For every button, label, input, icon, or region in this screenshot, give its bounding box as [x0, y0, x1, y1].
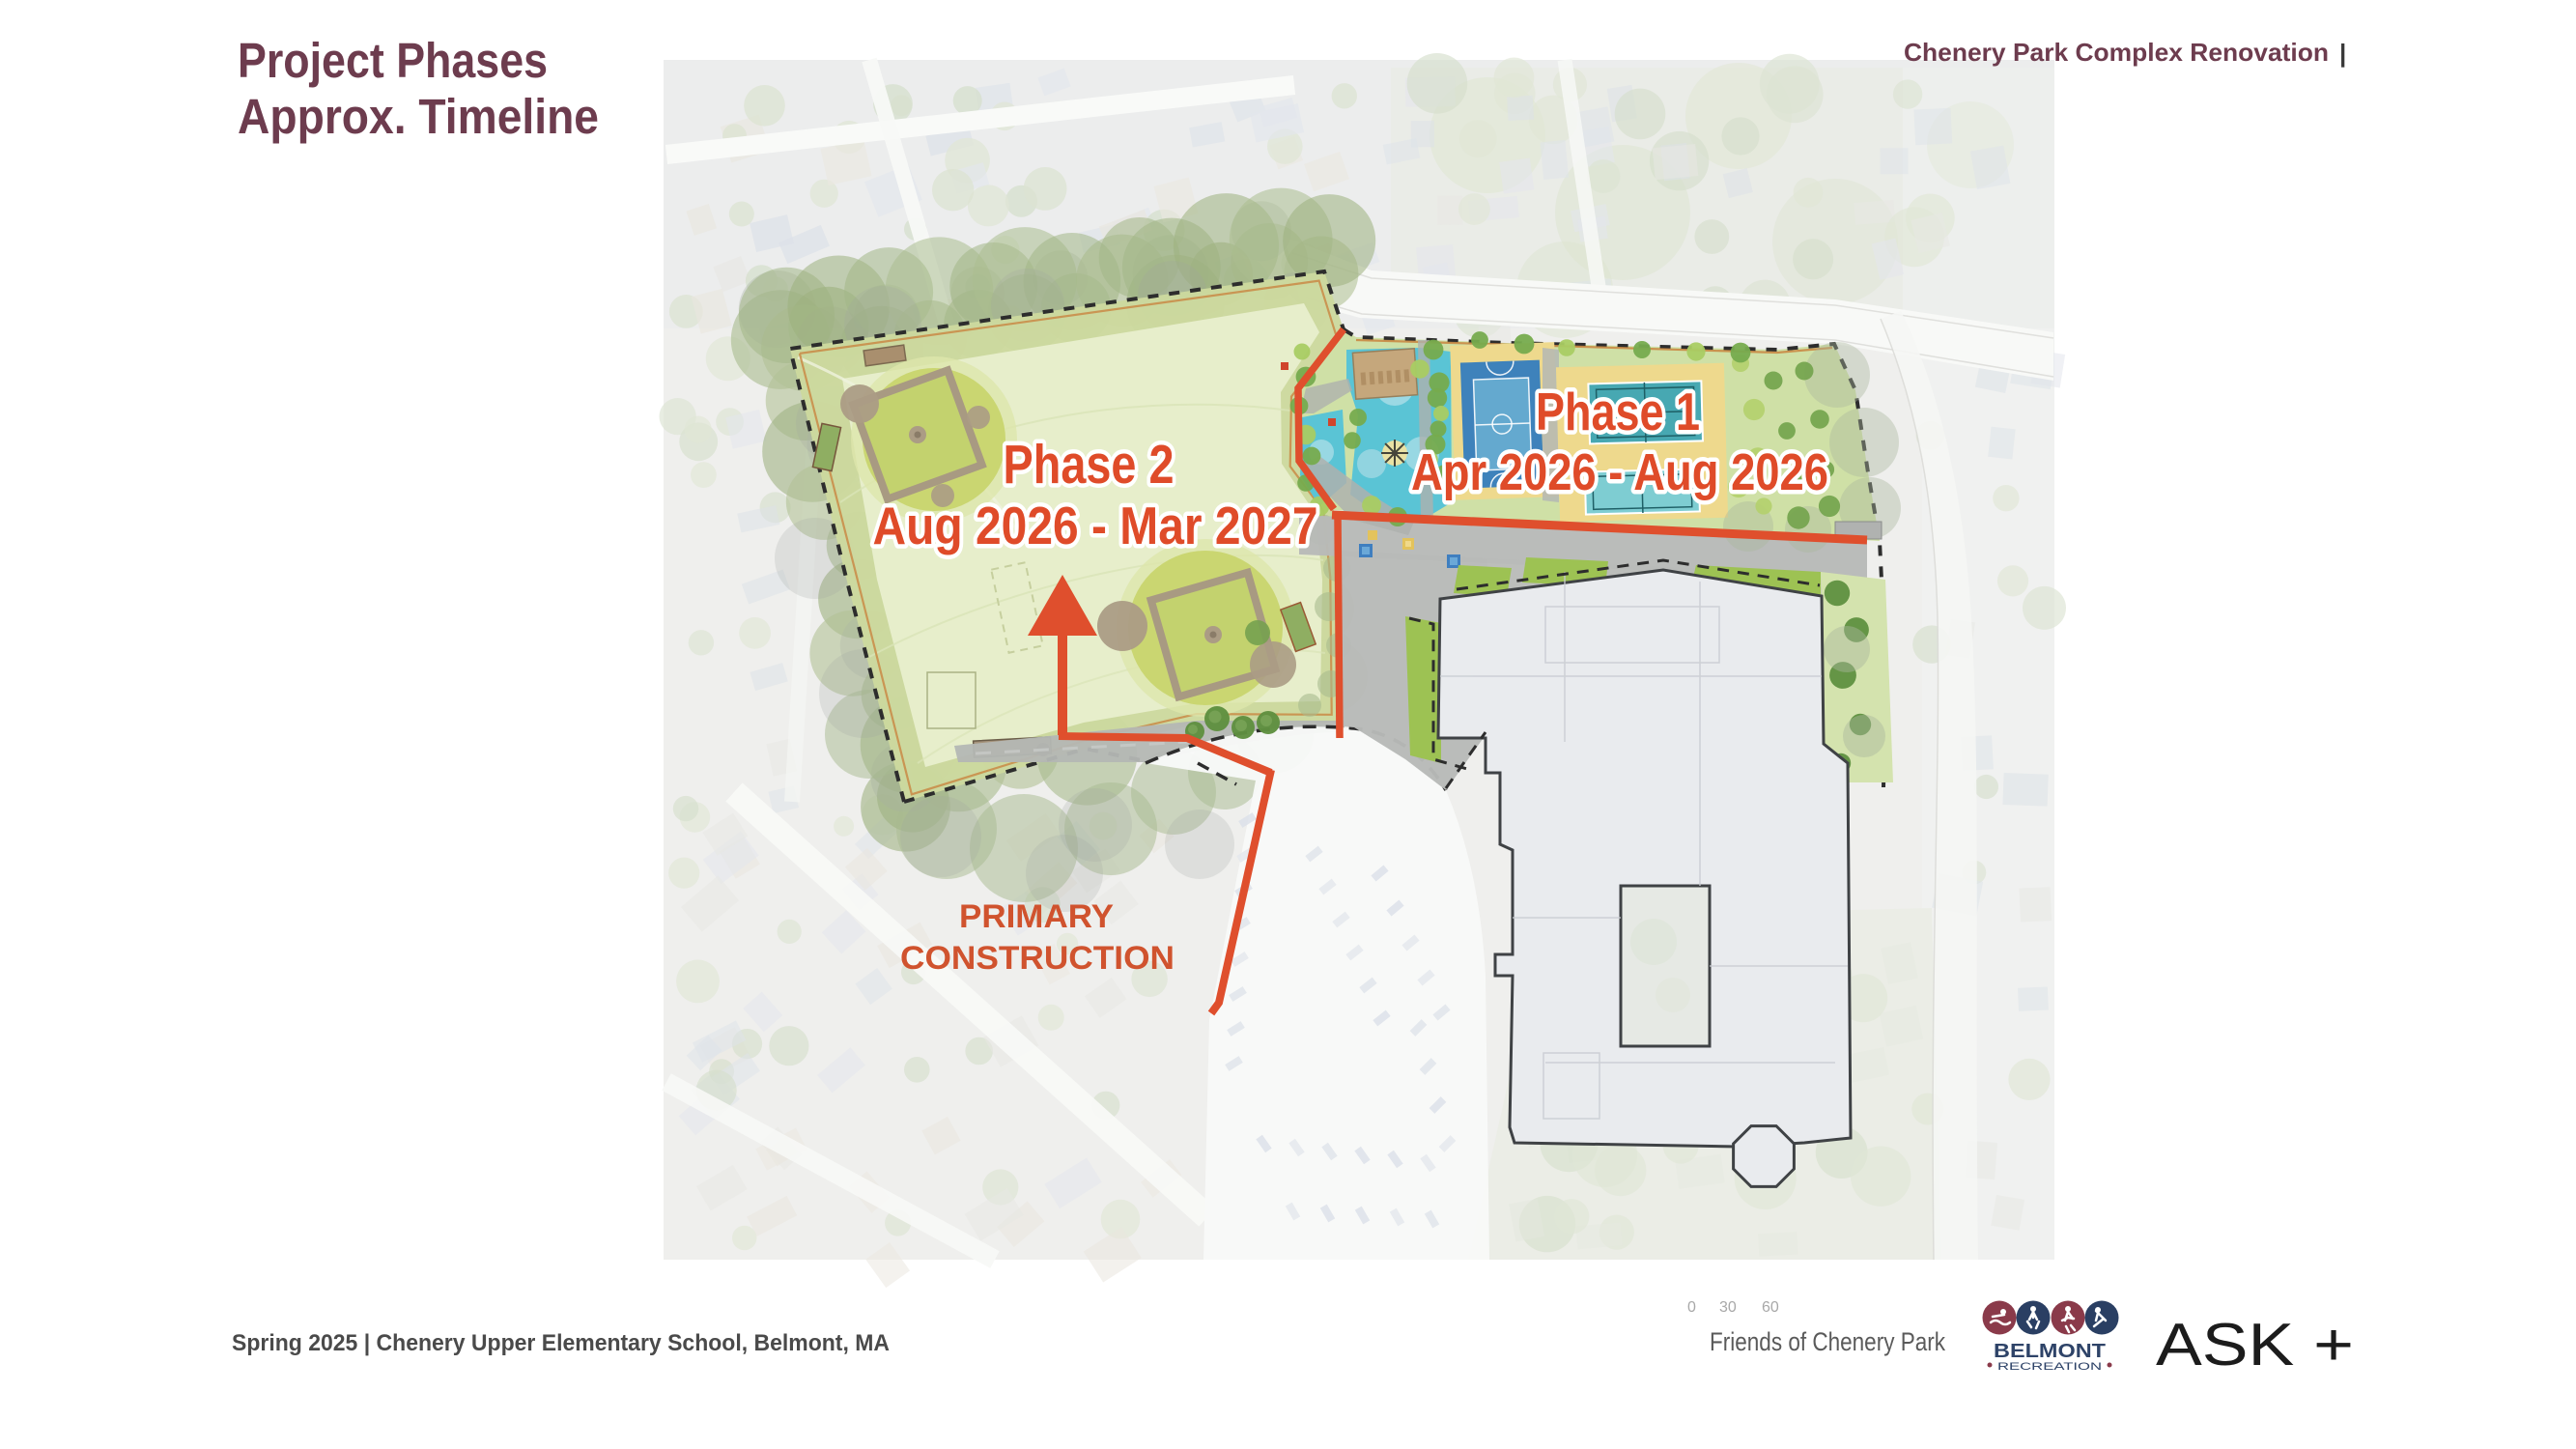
svg-text:30: 30 [1719, 1299, 1737, 1316]
svg-text:Project Phases: Project Phases [238, 33, 548, 88]
svg-text:|: | [2339, 39, 2346, 68]
svg-text:PRIMARY: PRIMARY [959, 898, 1114, 935]
svg-text:Chenery Park Complex Renovatio: Chenery Park Complex Renovation [1904, 38, 2329, 67]
svg-text:Approx. Timeline: Approx. Timeline [238, 89, 599, 144]
svg-text:60: 60 [1762, 1299, 1779, 1316]
svg-text:Phase 1: Phase 1 [1536, 382, 1700, 441]
svg-text:RECREATION: RECREATION [1997, 1361, 2102, 1373]
svg-text:BELMONT: BELMONT [1994, 1341, 2106, 1362]
svg-text:0: 0 [1687, 1299, 1696, 1316]
svg-text:Aug 2026 - Mar 2027: Aug 2026 - Mar 2027 [873, 496, 1318, 555]
svg-text:Friends of Chenery Park: Friends of Chenery Park [1710, 1327, 1945, 1356]
svg-text:CONSTRUCTION: CONSTRUCTION [900, 940, 1175, 977]
svg-text:Apr 2026 - Aug 2026: Apr 2026 - Aug 2026 [1411, 443, 1828, 501]
svg-text:Spring 2025 | Chenery Upper E: Spring 2025 | Chenery Upper Elementary S… [232, 1330, 890, 1356]
svg-text:ASK +: ASK + [2156, 1312, 2354, 1378]
svg-text:Phase 2: Phase 2 [1004, 434, 1175, 496]
